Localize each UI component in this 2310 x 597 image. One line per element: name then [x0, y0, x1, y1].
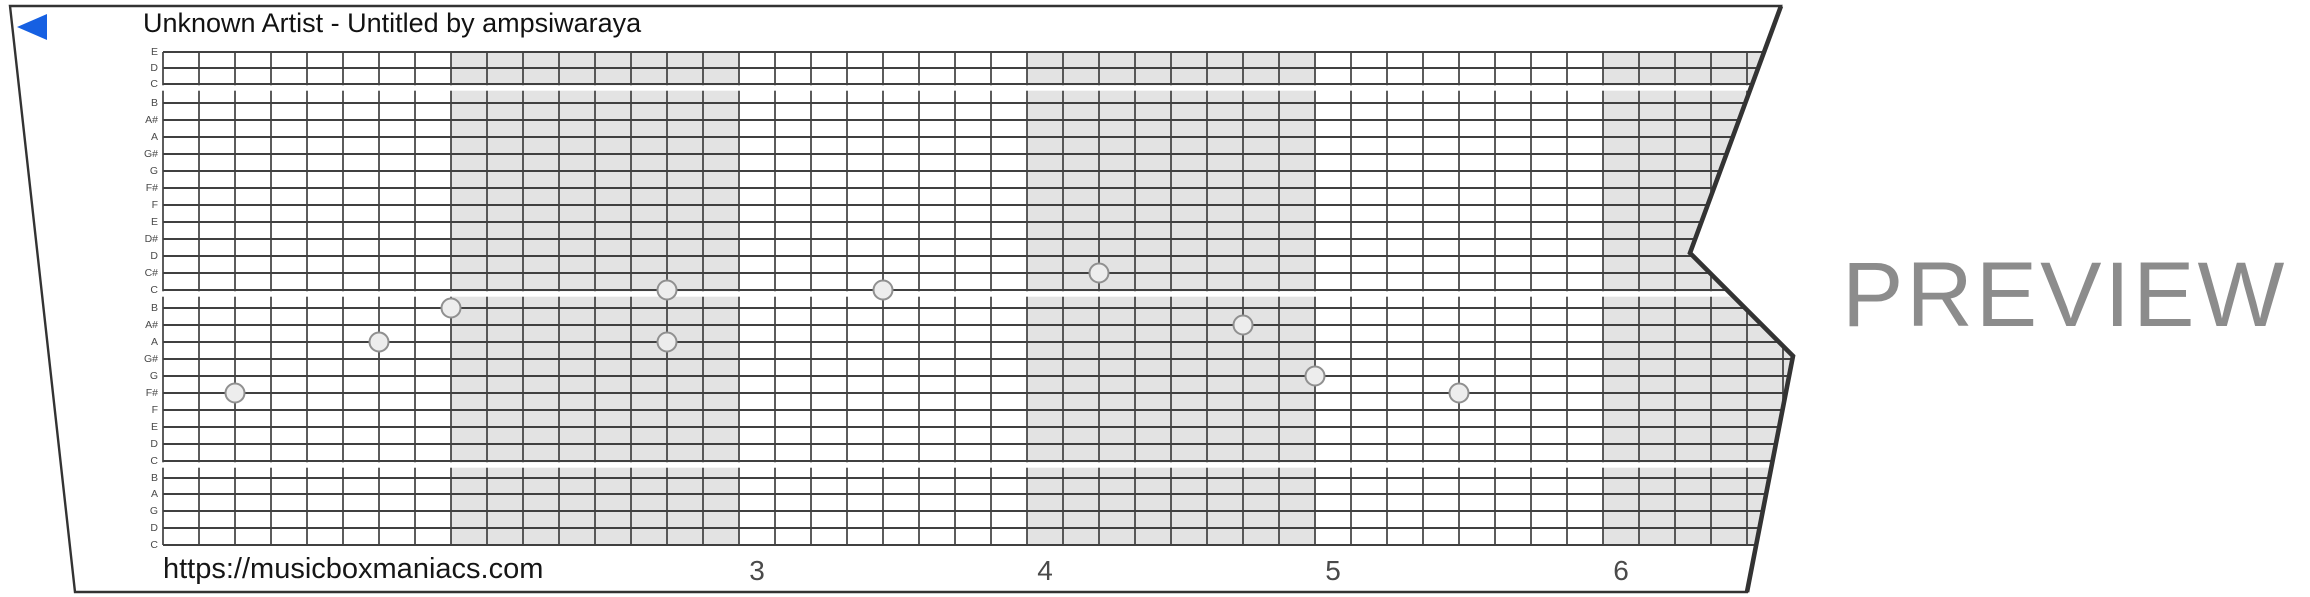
note-dot-csharp: [1090, 264, 1109, 283]
note-dot-fsharp: [226, 384, 245, 403]
row-label-10-e: E: [112, 216, 158, 229]
row-label-6-gsharp: G#: [112, 148, 158, 161]
page-title: Unknown Artist - Untitled by ampsiwaraya: [143, 8, 641, 39]
preview-watermark: PREVIEW: [1842, 249, 2287, 341]
row-label-11-dsharp: D#: [112, 233, 158, 246]
row-label-29-c: C: [112, 539, 158, 552]
row-label-4-asharp: A#: [112, 114, 158, 127]
note-dot-asharp: [1234, 316, 1253, 335]
note-dot-a: [370, 333, 389, 352]
row-label-5-a: A: [112, 131, 158, 144]
row-label-20-fsharp: F#: [112, 387, 158, 400]
row-label-2-c: C: [112, 78, 158, 91]
row-label-12-d: D: [112, 250, 158, 263]
octave-separator: [161, 462, 1802, 467]
music-box-preview-page: Unknown Artist - Untitled by ampsiwaraya…: [0, 0, 2310, 597]
site-url-link[interactable]: https://musicboxmaniacs.com: [163, 553, 543, 586]
row-label-19-g: G: [112, 370, 158, 383]
row-label-21-f: F: [112, 404, 158, 417]
row-label-1-d: D: [112, 62, 158, 75]
row-label-9-f: F: [112, 199, 158, 212]
note-dot-c: [874, 281, 893, 300]
row-label-26-a: A: [112, 488, 158, 501]
row-label-18-gsharp: G#: [112, 353, 158, 366]
row-label-14-c: C: [112, 284, 158, 297]
bar-number-5: 5: [1325, 555, 1341, 587]
octave-separator: [161, 85, 1802, 90]
row-label-15-b: B: [112, 302, 158, 315]
row-label-7-g: G: [112, 165, 158, 178]
bar-number-3: 3: [749, 555, 765, 587]
note-dot-g: [1306, 367, 1325, 386]
row-label-13-csharp: C#: [112, 267, 158, 280]
octave-separator: [161, 291, 1802, 296]
row-label-27-g: G: [112, 505, 158, 518]
row-label-16-asharp: A#: [112, 319, 158, 332]
row-label-3-b: B: [112, 97, 158, 110]
row-label-17-a: A: [112, 336, 158, 349]
note-dot-a: [658, 333, 677, 352]
row-label-22-e: E: [112, 421, 158, 434]
bar-number-6: 6: [1613, 555, 1629, 587]
row-label-0-e: E: [112, 46, 158, 59]
note-dot-fsharp: [1450, 384, 1469, 403]
row-label-8-fsharp: F#: [112, 182, 158, 195]
row-label-24-c: C: [112, 455, 158, 468]
strip-paper: [10, 6, 1793, 592]
bar-number-4: 4: [1037, 555, 1053, 587]
note-dot-b: [442, 299, 461, 318]
row-label-28-d: D: [112, 522, 158, 535]
row-label-23-d: D: [112, 438, 158, 451]
note-dot-c: [658, 281, 677, 300]
row-label-25-b: B: [112, 472, 158, 485]
